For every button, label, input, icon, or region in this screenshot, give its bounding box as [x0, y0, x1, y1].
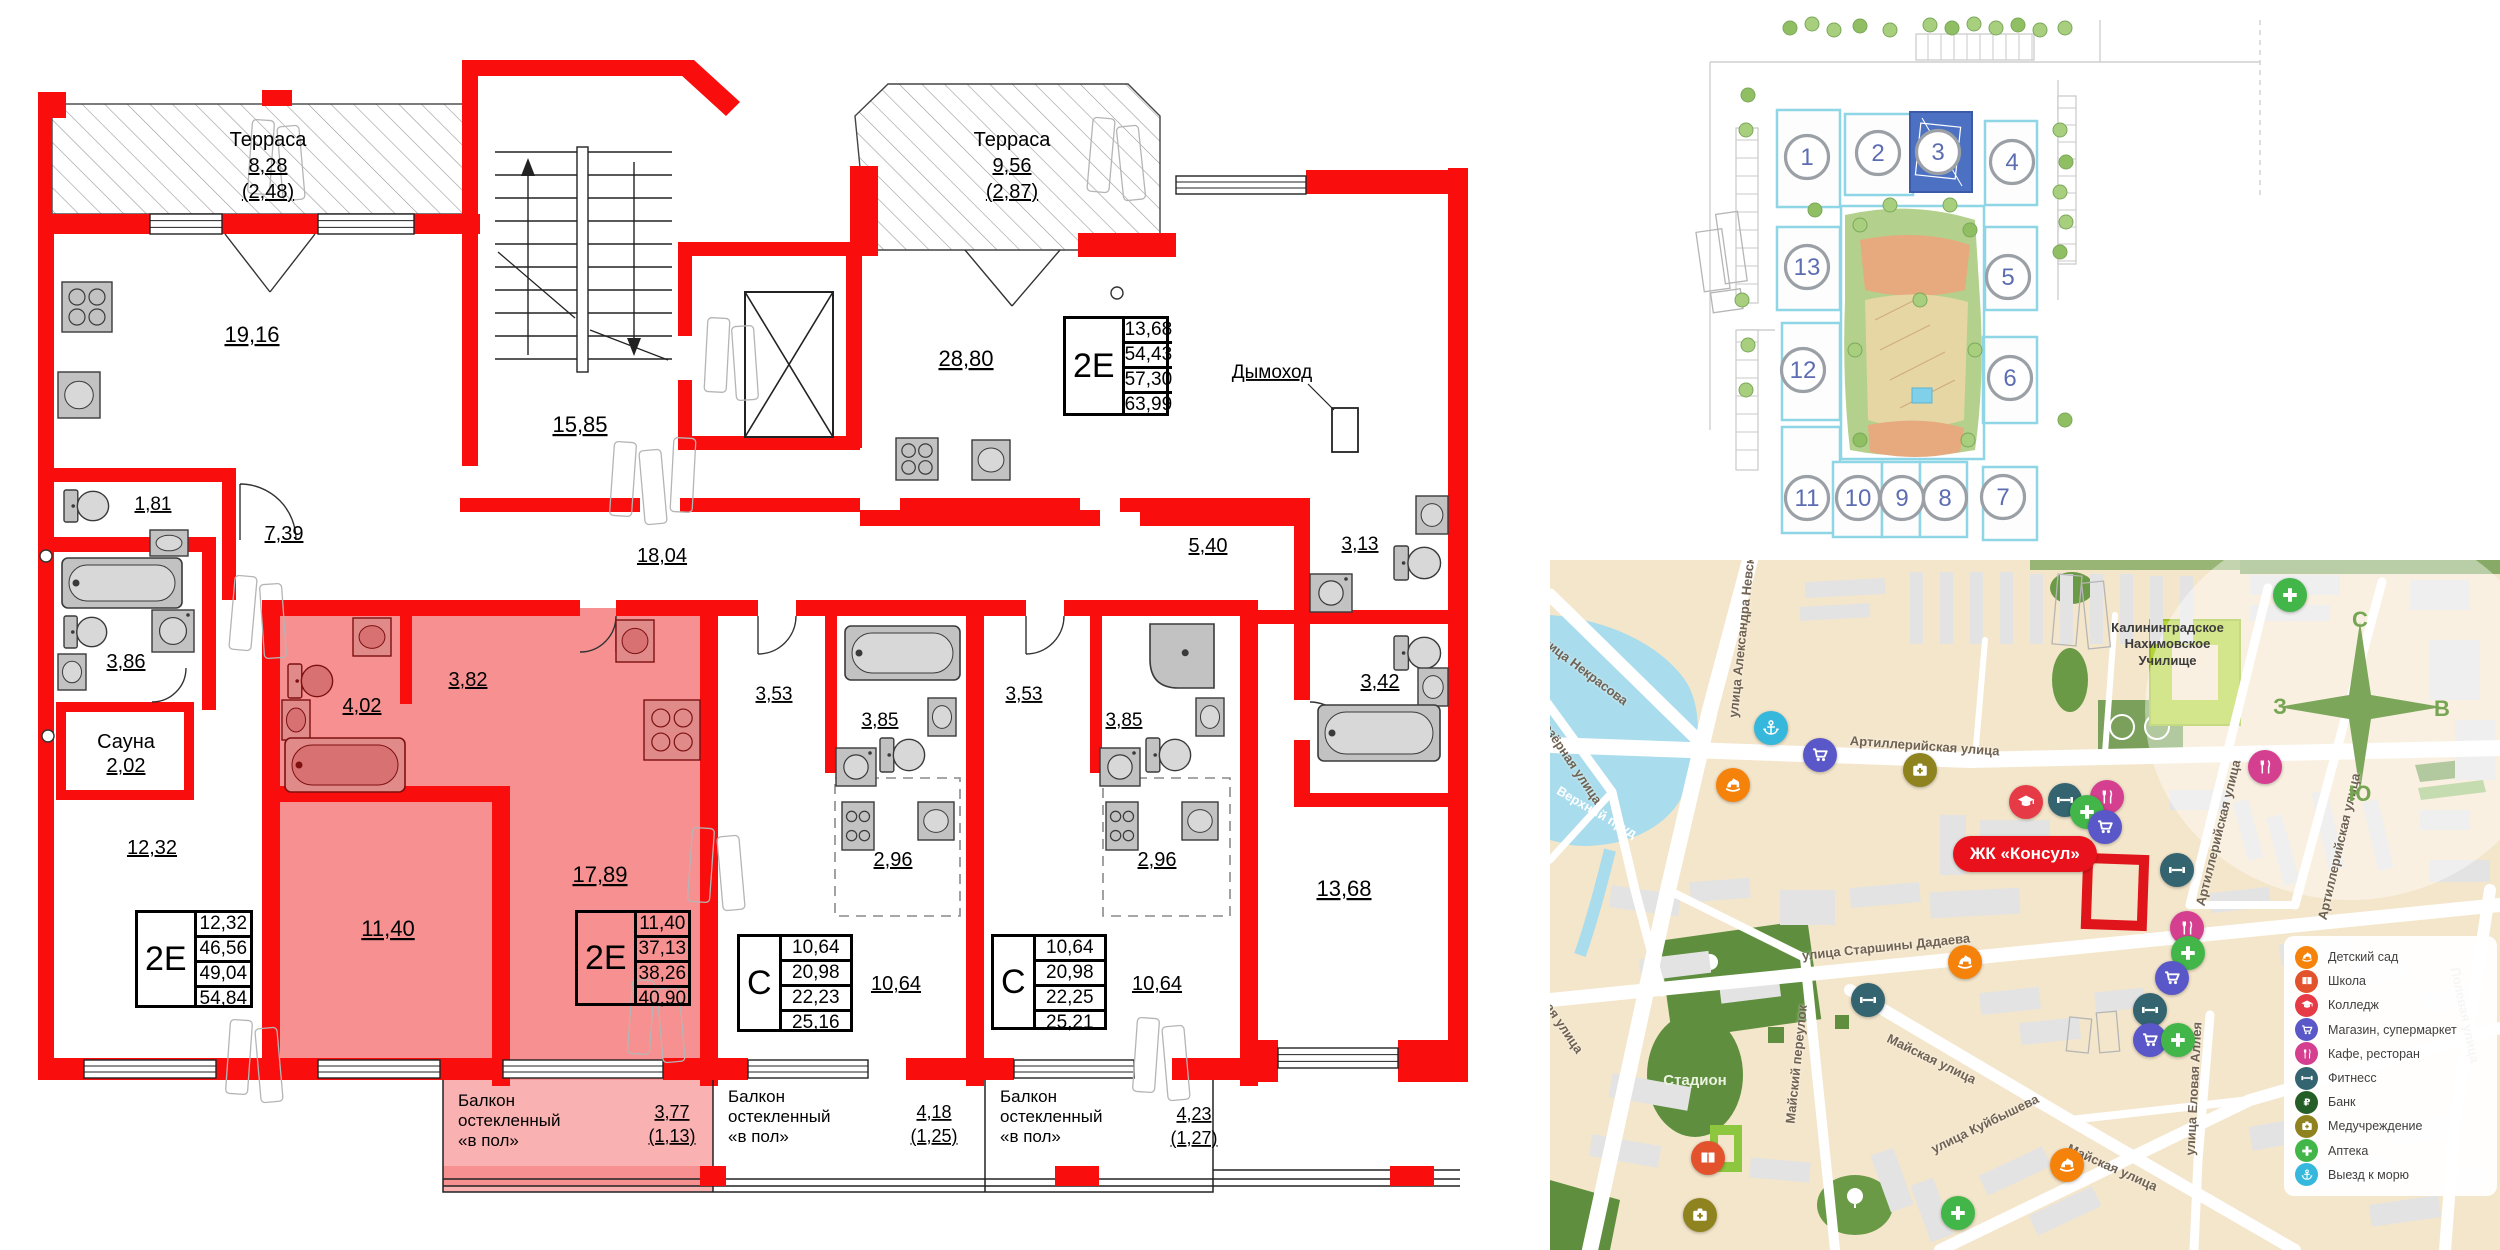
- poi-pharmacy-icon[interactable]: [1941, 1196, 1975, 1230]
- plan-label: 3,13: [1342, 534, 1379, 555]
- poi-kindergarten-icon[interactable]: [1716, 768, 1750, 802]
- plan-label: остекленный: [728, 1107, 831, 1126]
- svg-text:6: 6: [2003, 365, 2016, 392]
- site-building-6: 6: [1989, 357, 2032, 400]
- plan-label: (2,87): [986, 181, 1038, 203]
- compass-rose: С З В Ю: [2270, 610, 2450, 800]
- svg-text:13: 13: [1794, 254, 1821, 281]
- plan-label: «в пол»: [728, 1127, 789, 1146]
- plan-label: «в пол»: [1000, 1127, 1061, 1146]
- fitness-icon: [2295, 1067, 2318, 1090]
- plan-label: 3,53: [756, 684, 793, 705]
- plan-label: Терраса: [230, 129, 308, 151]
- legend-item-med: Медучреждение: [2295, 1114, 2486, 1138]
- plan-label: 9,56: [993, 155, 1032, 177]
- site-building-2: 2: [1857, 132, 1900, 175]
- city-map: улица Некрасоваулица Александра Невского…: [1550, 560, 2500, 1250]
- legend-label: Банк: [2328, 1095, 2356, 1109]
- plan-label: 2,96: [874, 849, 913, 871]
- page: Терраса8,28(2,48)19,1615,85Терраса9,56(2…: [0, 0, 2500, 1250]
- compass-east: В: [2434, 696, 2450, 722]
- poi-pharmacy-icon[interactable]: [2273, 578, 2307, 612]
- poi-shop-icon[interactable]: [2155, 961, 2189, 995]
- compass-north: С: [2352, 607, 2368, 633]
- poi-college-icon[interactable]: [2009, 785, 2043, 819]
- plan-label: остекленный: [458, 1111, 561, 1130]
- plan-label: 5,40: [1189, 535, 1228, 557]
- plan-label: Балкон: [458, 1091, 515, 1110]
- plan-label: Балкон: [1000, 1087, 1057, 1106]
- poi-med-icon[interactable]: [1903, 753, 1937, 787]
- svg-text:4: 4: [2005, 149, 2018, 176]
- plan-label: 1,81: [135, 494, 172, 515]
- kindergarten-icon: [2295, 946, 2318, 969]
- svg-text:5: 5: [2001, 264, 2014, 291]
- legend-item-fitness: Фитнесс: [2295, 1066, 2486, 1090]
- svg-text:8: 8: [1938, 485, 1951, 512]
- plan-label: 4,02: [343, 695, 382, 717]
- legend-item-college: Колледж: [2295, 993, 2486, 1017]
- plan-label: 13,68: [1316, 876, 1371, 901]
- site-building-13: 13: [1786, 246, 1829, 289]
- plan-label: 28,80: [938, 346, 993, 371]
- legend-label: Школа: [2328, 974, 2366, 988]
- legend-label: Аптека: [2328, 1144, 2368, 1158]
- poi-kindergarten-icon[interactable]: [2050, 1148, 2084, 1182]
- floorplan-drawing: Терраса8,28(2,48)19,1615,85Терраса9,56(2…: [0, 0, 1500, 1250]
- svg-text:9: 9: [1895, 485, 1908, 512]
- legend-label: Фитнесс: [2328, 1071, 2377, 1085]
- college-icon: [2295, 994, 2318, 1017]
- plan-label: 3,42: [1361, 671, 1400, 693]
- site-plan: 12341351261110987: [1560, 0, 2500, 560]
- svg-text:11: 11: [1795, 485, 1820, 512]
- site-building-4: 4: [1991, 141, 2034, 184]
- floorplan: Терраса8,28(2,48)19,1615,85Терраса9,56(2…: [0, 0, 1500, 1250]
- svg-text:3: 3: [1931, 139, 1944, 166]
- legend-label: Магазин, супермаркет: [2328, 1023, 2457, 1037]
- site-plan-drawing: 12341351261110987: [1560, 0, 2500, 560]
- walls: [38, 60, 1468, 1186]
- legend-label: Медучреждение: [2328, 1119, 2423, 1133]
- legend-label: Выезд к морю: [2328, 1168, 2409, 1182]
- plan-label: Дымоход: [1232, 362, 1312, 383]
- legend-item-cafe: Кафе, ресторан: [2295, 1042, 2486, 1066]
- courtyard-landscaping: [1844, 209, 1981, 457]
- plan-label: 8,28: [249, 155, 288, 177]
- site-building-7: 7: [1982, 476, 2025, 519]
- poi-pharmacy-icon[interactable]: [2161, 1023, 2195, 1057]
- legend-item-school: Школа: [2295, 969, 2486, 993]
- sea-icon: [2295, 1163, 2318, 1186]
- plan-label: 12,32: [127, 837, 177, 859]
- plan-label: остекленный: [1000, 1107, 1103, 1126]
- pharmacy-icon: [2295, 1139, 2318, 1162]
- svg-text:10: 10: [1845, 485, 1872, 512]
- compass-south: Ю: [2349, 781, 2372, 807]
- plan-label: 3,86: [107, 651, 146, 673]
- poi-med-icon[interactable]: [1683, 1198, 1717, 1232]
- bank-icon: ₽: [2295, 1091, 2318, 1114]
- legend-label: Колледж: [2328, 998, 2379, 1012]
- legend-label: Кафе, ресторан: [2328, 1047, 2420, 1061]
- poi-fitness-icon[interactable]: [2160, 853, 2194, 887]
- site-building-9: 9: [1881, 477, 1924, 520]
- site-building-1: 1: [1786, 136, 1829, 179]
- med-icon: [2295, 1115, 2318, 1138]
- plan-label: 10,64: [1132, 973, 1182, 995]
- area-label: Калининградское Нахимовское Училище: [2095, 620, 2240, 669]
- plan-label: «в пол»: [458, 1131, 519, 1150]
- site-building-3: 3: [1917, 131, 1960, 174]
- compass-west: З: [2273, 694, 2287, 720]
- plan-label: 11,40: [361, 916, 414, 941]
- school-icon: [2295, 970, 2318, 993]
- poi-fitness-icon[interactable]: [2133, 993, 2167, 1027]
- plan-label: Балкон: [728, 1087, 785, 1106]
- legend-item-pharmacy: Аптека: [2295, 1139, 2486, 1163]
- plan-label: 17,89: [572, 862, 627, 887]
- plan-label: Терраса: [974, 129, 1052, 151]
- poi-shop-icon[interactable]: [1803, 738, 1837, 772]
- plan-label: 4,23: [1176, 1104, 1211, 1124]
- plan-label: 2,02: [107, 755, 146, 777]
- plan-label: 18,04: [637, 545, 687, 567]
- cafe-icon: [2295, 1042, 2318, 1065]
- plan-label: (1,25): [910, 1126, 957, 1146]
- area-label: Стадион: [1650, 1072, 1740, 1091]
- plan-label: 2,96: [1138, 849, 1177, 871]
- plan-label: 7,39: [265, 523, 304, 545]
- shop-icon: [2295, 1018, 2318, 1041]
- legend-item-shop: Магазин, супермаркет: [2295, 1018, 2486, 1042]
- plan-label: 3,85: [1106, 710, 1143, 731]
- plan-label: (1,13): [648, 1126, 695, 1146]
- plan-label: 4,18: [916, 1102, 951, 1122]
- plan-label: 10,64: [871, 973, 921, 995]
- plan-label: 3,82: [449, 669, 488, 691]
- site-building-11: 11: [1786, 477, 1829, 520]
- legend-item-kindergarten: Детский сад: [2295, 945, 2486, 969]
- site-building-10: 10: [1837, 477, 1880, 520]
- poi-shop-icon[interactable]: [2088, 810, 2122, 844]
- plan-label: 3,85: [862, 710, 899, 731]
- poi-fitness-icon[interactable]: [1851, 983, 1885, 1017]
- site-building-8: 8: [1924, 477, 1967, 520]
- svg-text:12: 12: [1790, 357, 1817, 384]
- consul-badge: ЖК «Консул»: [1953, 836, 2097, 872]
- plan-label: 3,77: [654, 1102, 689, 1122]
- plan-label: 3,53: [1006, 684, 1043, 705]
- poi-sea-icon[interactable]: [1754, 711, 1788, 745]
- site-building-12: 12: [1782, 349, 1825, 392]
- plan-label: 15,85: [552, 412, 607, 437]
- legend-item-sea: Выезд к морю: [2295, 1163, 2486, 1187]
- legend-item-bank: ₽Банк: [2295, 1090, 2486, 1114]
- plan-label: (2,48): [242, 181, 294, 203]
- svg-text:2: 2: [1871, 140, 1884, 167]
- plan-label: 19,16: [224, 322, 279, 347]
- map-legend: Детский садШколаКолледжМагазин, супермар…: [2284, 936, 2497, 1196]
- plan-label: (1,27): [1170, 1128, 1217, 1148]
- poi-school-icon[interactable]: [1691, 1141, 1725, 1175]
- chimney: [1308, 384, 1358, 452]
- svg-text:₽: ₽: [2303, 1098, 2310, 1109]
- plan-label: Сауна: [97, 731, 156, 753]
- svg-text:1: 1: [1800, 144, 1813, 171]
- svg-text:7: 7: [1996, 484, 2009, 511]
- elevator: [745, 292, 833, 437]
- site-building-5: 5: [1987, 256, 2030, 299]
- legend-label: Детский сад: [2328, 950, 2398, 964]
- poi-kindergarten-icon[interactable]: [1948, 945, 1982, 979]
